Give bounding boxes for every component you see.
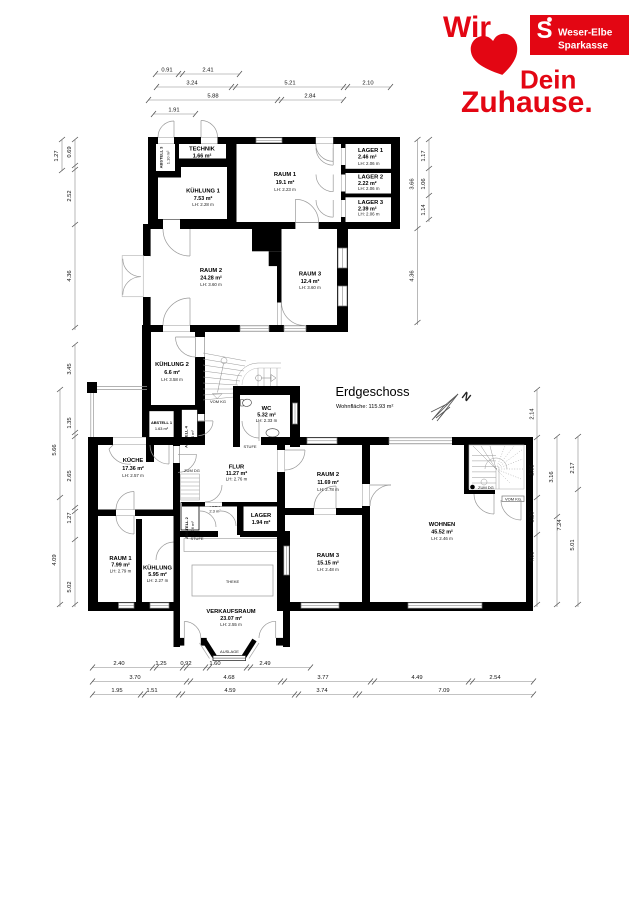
svg-text:6.6 m²: 6.6 m² (164, 370, 180, 376)
svg-text:LH: 2.46 m: LH: 2.46 m (431, 536, 453, 541)
svg-text:15.15 m²: 15.15 m² (317, 561, 339, 567)
svg-text:3.70: 3.70 (129, 675, 140, 681)
svg-text:ABSTELL 3: ABSTELL 3 (159, 146, 164, 168)
svg-text:VOM KG: VOM KG (505, 496, 521, 501)
svg-text:2.52: 2.52 (67, 190, 73, 201)
svg-text:RAUM 3: RAUM 3 (299, 272, 322, 278)
svg-text:LH: 2.48 m: LH: 2.48 m (317, 567, 339, 572)
svg-text:5.66: 5.66 (52, 444, 58, 455)
svg-text:KÜCHE: KÜCHE (123, 457, 144, 464)
svg-text:FLUR: FLUR (229, 465, 245, 471)
svg-text:4.36: 4.36 (410, 270, 416, 281)
svg-text:2.40: 2.40 (113, 661, 124, 667)
svg-text:THEKE: THEKE (226, 579, 240, 584)
svg-text:VERKAUFSRAUM: VERKAUFSRAUM (206, 609, 255, 615)
svg-text:2.14: 2.14 (530, 408, 536, 420)
svg-text:VOM KG: VOM KG (210, 399, 226, 404)
svg-text:1.63 m²: 1.63 m² (155, 426, 169, 431)
svg-text:1.16 m²: 1.16 m² (190, 521, 195, 535)
svg-text:LH: 2.33 m: LH: 2.33 m (256, 418, 278, 423)
svg-text:2.41: 2.41 (202, 68, 213, 74)
svg-text:ABSTELL 1: ABSTELL 1 (151, 420, 173, 425)
svg-text:2.17: 2.17 (570, 462, 576, 473)
svg-text:5.02: 5.02 (67, 581, 73, 592)
svg-text:LH: 2.23 m: LH: 2.23 m (274, 187, 296, 192)
svg-text:0.92: 0.92 (180, 661, 191, 667)
svg-text:RAUM 2: RAUM 2 (317, 472, 339, 478)
svg-text:LAGER 3: LAGER 3 (358, 200, 384, 206)
svg-text:2.54: 2.54 (489, 675, 501, 681)
svg-text:1.27: 1.27 (67, 512, 73, 523)
svg-text:4.49: 4.49 (411, 675, 422, 681)
svg-text:LH: 2.57 m: LH: 2.57 m (122, 473, 144, 478)
svg-text:11.69 m²: 11.69 m² (317, 480, 338, 486)
svg-text:AUSLAGE: AUSLAGE (220, 649, 239, 654)
svg-text:WOHNEN: WOHNEN (429, 522, 455, 528)
svg-text:0.91: 0.91 (161, 68, 172, 74)
svg-text:LAGER 2: LAGER 2 (358, 175, 383, 181)
svg-text:5.88: 5.88 (207, 94, 218, 100)
svg-text:5.01: 5.01 (570, 539, 576, 550)
svg-text:24.28 m²: 24.28 m² (200, 276, 222, 282)
svg-text:TECHNIK: TECHNIK (189, 147, 216, 153)
svg-text:LH: 3.60 m: LH: 3.60 m (299, 285, 321, 290)
svg-text:ZUM DG: ZUM DG (478, 485, 494, 490)
svg-text:2.65: 2.65 (67, 470, 73, 481)
svg-text:3.16: 3.16 (549, 471, 555, 482)
svg-text:1.06: 1.06 (421, 178, 427, 189)
svg-text:0.69: 0.69 (67, 146, 73, 157)
svg-text:7.24: 7.24 (557, 519, 563, 531)
svg-text:4.05: 4.05 (530, 551, 536, 562)
svg-text:Weser-Elbe: Weser-Elbe (558, 28, 613, 39)
svg-text:4.09: 4.09 (52, 554, 58, 565)
svg-text:1.25: 1.25 (155, 661, 166, 667)
svg-text:1.51: 1.51 (146, 688, 157, 694)
svg-text:ABSTELL 2: ABSTELL 2 (184, 516, 189, 538)
svg-text:2.46 m²: 2.46 m² (358, 155, 377, 161)
svg-text:2.3 m²: 2.3 m² (209, 509, 221, 514)
svg-text:1.35: 1.35 (67, 417, 73, 428)
svg-text:LH: 2.06 m: LH: 2.06 m (358, 212, 380, 217)
svg-text:1.66 m²: 1.66 m² (193, 153, 212, 159)
svg-text:LH: 2.79 m: LH: 2.79 m (110, 569, 132, 574)
svg-text:ZUM DG: ZUM DG (184, 468, 200, 473)
svg-text:LH: 2.06 m: LH: 2.06 m (358, 186, 380, 191)
svg-text:5.21: 5.21 (284, 81, 295, 87)
svg-text:3.45: 3.45 (67, 363, 73, 374)
svg-text:4.59: 4.59 (224, 688, 235, 694)
svg-text:LH: 2.06 m: LH: 2.06 m (358, 161, 380, 166)
svg-text:1.60: 1.60 (209, 661, 220, 667)
svg-text:RAUM 1: RAUM 1 (274, 172, 297, 178)
svg-text:LH: 2.78 m: LH: 2.78 m (317, 487, 339, 492)
svg-text:STUFE: STUFE (190, 536, 203, 541)
svg-text:23.07 m²: 23.07 m² (220, 616, 242, 622)
svg-text:1.95: 1.95 (111, 688, 122, 694)
svg-text:STUFE: STUFE (243, 444, 256, 449)
svg-text:WC: WC (262, 406, 272, 412)
svg-text:LH: 3.58 m: LH: 3.58 m (161, 377, 183, 382)
svg-text:2.65: 2.65 (530, 464, 536, 475)
svg-text:LAGER 1: LAGER 1 (358, 148, 384, 154)
svg-text:Wohnfläche: 115.93 m²: Wohnfläche: 115.93 m² (336, 404, 393, 410)
svg-text:2.84: 2.84 (304, 94, 316, 100)
svg-text:LAGER: LAGER (251, 513, 272, 519)
svg-text:Zuhause.: Zuhause. (461, 86, 593, 119)
svg-text:17.36 m²: 17.36 m² (122, 466, 144, 472)
svg-text:LH: 2.55 m: LH: 2.55 m (220, 622, 242, 627)
svg-text:Sparkasse: Sparkasse (558, 41, 608, 52)
svg-text:KÜHLUNG 1: KÜHLUNG 1 (186, 188, 221, 195)
svg-text:RAUM 1: RAUM 1 (109, 556, 132, 562)
svg-text:1.17: 1.17 (421, 150, 427, 161)
svg-text:LH: 2.28 m: LH: 2.28 m (192, 202, 214, 207)
svg-text:2.10: 2.10 (362, 81, 373, 87)
svg-text:KÜHLUNG 2: KÜHLUNG 2 (155, 361, 189, 368)
svg-text:1.10 m²: 1.10 m² (166, 150, 171, 164)
svg-text:45.52 m²: 45.52 m² (431, 529, 453, 535)
svg-text:4.68: 4.68 (223, 675, 234, 681)
svg-text:1.14: 1.14 (421, 204, 427, 216)
svg-text:1.20: 1.20 (530, 511, 536, 522)
svg-text:LH: 3.60 m: LH: 3.60 m (200, 282, 222, 287)
svg-text:7.09: 7.09 (438, 688, 449, 694)
svg-text:3.24: 3.24 (186, 81, 198, 87)
svg-text:1.91: 1.91 (168, 108, 179, 114)
svg-text:19.1 m²: 19.1 m² (276, 180, 295, 186)
svg-text:LH: 2.76 m: LH: 2.76 m (226, 477, 248, 482)
svg-text:LH: 2.27 m: LH: 2.27 m (147, 578, 169, 583)
svg-text:3.66: 3.66 (410, 178, 416, 189)
svg-text:Erdgeschoss: Erdgeschoss (336, 384, 410, 399)
svg-text:4.36: 4.36 (67, 270, 73, 281)
svg-text:1.27: 1.27 (54, 150, 60, 161)
svg-text:3.74: 3.74 (316, 688, 328, 694)
svg-text:RAUM 2: RAUM 2 (200, 268, 222, 274)
svg-text:KÜHLUNG: KÜHLUNG (143, 565, 172, 572)
svg-text:3.77: 3.77 (317, 675, 328, 681)
svg-text:RAUM 3: RAUM 3 (317, 553, 340, 559)
svg-text:2.49: 2.49 (259, 661, 270, 667)
svg-text:1.94 m²: 1.94 m² (252, 520, 271, 526)
